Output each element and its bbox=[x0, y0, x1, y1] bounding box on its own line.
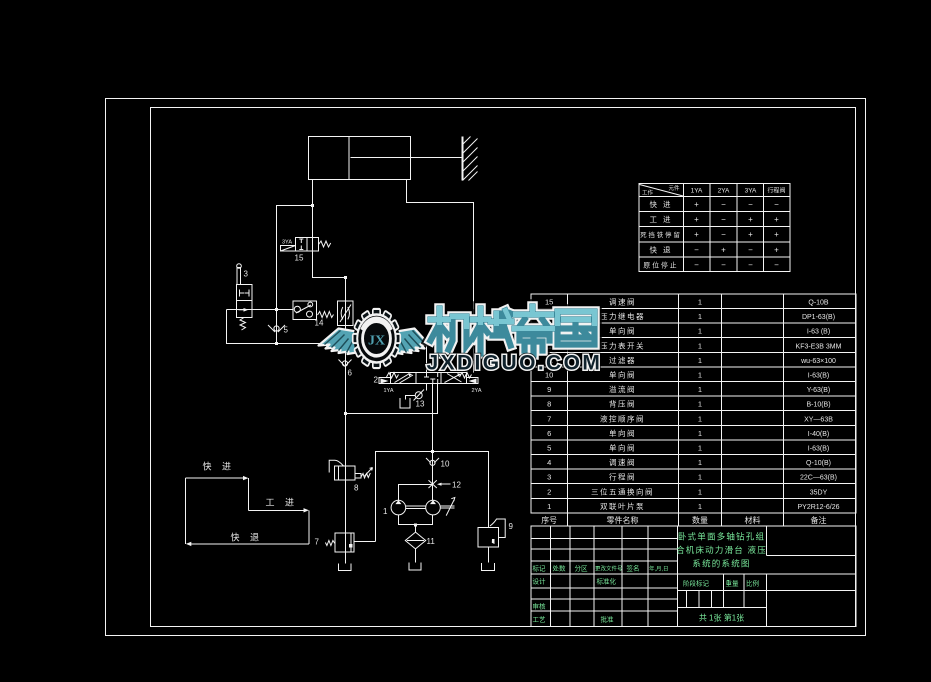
svg-text:2YA: 2YA bbox=[472, 388, 482, 394]
svg-text:XY—63B: XY—63B bbox=[804, 416, 833, 423]
svg-text:1: 1 bbox=[698, 502, 702, 511]
svg-text:压力表开关: 压力表开关 bbox=[600, 340, 645, 350]
svg-text:快 退: 快 退 bbox=[649, 245, 672, 255]
svg-text:PY2R12-6/26: PY2R12-6/26 bbox=[797, 504, 839, 511]
svg-text:单向阀: 单向阀 bbox=[609, 443, 636, 453]
svg-text:阶段标记: 阶段标记 bbox=[683, 579, 710, 588]
svg-text:JX: JX bbox=[368, 334, 385, 349]
svg-text:1: 1 bbox=[698, 312, 702, 321]
svg-text:元件: 元件 bbox=[669, 184, 681, 192]
svg-text:5: 5 bbox=[284, 326, 289, 335]
svg-text:2YA: 2YA bbox=[718, 188, 730, 195]
svg-text:背压阀: 背压阀 bbox=[609, 399, 636, 409]
svg-text:压力继电器: 压力继电器 bbox=[600, 311, 645, 321]
svg-text:14: 14 bbox=[315, 319, 324, 328]
svg-text:处数: 处数 bbox=[553, 564, 567, 573]
svg-text:重量: 重量 bbox=[726, 580, 740, 588]
svg-text:系统的系统图: 系统的系统图 bbox=[692, 559, 750, 569]
svg-text:单向阀: 单向阀 bbox=[609, 370, 636, 380]
svg-text:调速阀: 调速阀 bbox=[609, 298, 636, 307]
svg-text:1: 1 bbox=[383, 507, 388, 516]
svg-text:JXDIGUO.COM: JXDIGUO.COM bbox=[427, 352, 603, 375]
svg-text:6: 6 bbox=[547, 429, 551, 438]
svg-text:I-63(B): I-63(B) bbox=[808, 446, 829, 453]
svg-text:−: − bbox=[748, 261, 753, 270]
svg-text:5: 5 bbox=[547, 444, 551, 453]
svg-text:−: − bbox=[721, 261, 726, 270]
svg-text:死挡铁停留: 死挡铁停留 bbox=[640, 230, 681, 239]
svg-text:6: 6 bbox=[348, 369, 353, 378]
svg-text:零件名称: 零件名称 bbox=[607, 515, 639, 525]
svg-text:标记: 标记 bbox=[533, 564, 547, 573]
svg-text:材料: 材料 bbox=[745, 515, 761, 525]
svg-text:备注: 备注 bbox=[811, 515, 827, 525]
svg-text:8: 8 bbox=[354, 484, 359, 493]
svg-text:4: 4 bbox=[547, 458, 551, 467]
svg-text:工 进: 工 进 bbox=[266, 498, 299, 508]
svg-text:DP1-63(B): DP1-63(B) bbox=[802, 314, 835, 321]
svg-text:1: 1 bbox=[698, 341, 702, 350]
svg-text:3YA: 3YA bbox=[282, 240, 292, 246]
svg-text:1YA: 1YA bbox=[691, 188, 703, 195]
svg-text:过滤器: 过滤器 bbox=[609, 355, 636, 365]
svg-text:+: + bbox=[748, 215, 753, 224]
svg-text:设计: 设计 bbox=[533, 577, 547, 586]
svg-text:2: 2 bbox=[374, 376, 379, 385]
svg-text:共 1张 第1张: 共 1张 第1张 bbox=[699, 613, 744, 623]
svg-text:工 进: 工 进 bbox=[649, 215, 672, 224]
svg-text:双联叶片泵: 双联叶片泵 bbox=[600, 501, 645, 511]
svg-text:B-10(B): B-10(B) bbox=[806, 402, 830, 409]
svg-text:−: − bbox=[721, 200, 726, 209]
svg-text:1: 1 bbox=[698, 356, 702, 365]
svg-text:批准: 批准 bbox=[601, 615, 615, 624]
svg-text:1: 1 bbox=[698, 487, 702, 496]
svg-text:10: 10 bbox=[441, 460, 450, 469]
svg-text:I-63 (B): I-63 (B) bbox=[807, 329, 830, 336]
svg-text:合机床动力滑台 液压: 合机床动力滑台 液压 bbox=[676, 545, 767, 555]
svg-text:快 进: 快 进 bbox=[649, 199, 672, 209]
svg-text:Q-10(B): Q-10(B) bbox=[806, 460, 831, 467]
svg-text:−: − bbox=[748, 200, 753, 209]
svg-text:+: + bbox=[774, 215, 779, 224]
svg-text:更改文件号: 更改文件号 bbox=[595, 565, 623, 573]
svg-text:行程阀: 行程阀 bbox=[767, 187, 785, 195]
svg-text:液控顺序阀: 液控顺序阀 bbox=[600, 413, 645, 423]
svg-text:分区: 分区 bbox=[575, 564, 589, 573]
svg-text:数量: 数量 bbox=[692, 515, 708, 525]
svg-text:2: 2 bbox=[547, 487, 551, 496]
svg-text:单向阀: 单向阀 bbox=[609, 326, 636, 336]
svg-text:1: 1 bbox=[547, 502, 551, 511]
svg-text:1: 1 bbox=[698, 371, 702, 380]
svg-text:年,月,日: 年,月,日 bbox=[649, 565, 669, 573]
svg-text:12: 12 bbox=[452, 481, 461, 490]
svg-text:−: − bbox=[694, 261, 699, 270]
svg-text:1: 1 bbox=[698, 458, 702, 467]
svg-text:−: − bbox=[694, 246, 699, 255]
svg-text:1: 1 bbox=[698, 385, 702, 394]
svg-text:快 退: 快 退 bbox=[231, 532, 264, 543]
svg-text:9: 9 bbox=[547, 385, 551, 394]
svg-text:1: 1 bbox=[698, 473, 702, 482]
svg-text:−: − bbox=[774, 261, 779, 270]
svg-text:22C—63(B): 22C—63(B) bbox=[800, 475, 837, 482]
svg-text:审核: 审核 bbox=[533, 602, 547, 611]
svg-text:+: + bbox=[721, 246, 726, 255]
svg-text:KF3-E3B 3MM: KF3-E3B 3MM bbox=[796, 343, 842, 350]
svg-text:1YA: 1YA bbox=[384, 388, 394, 394]
svg-text:1: 1 bbox=[698, 298, 702, 307]
svg-text:序号: 序号 bbox=[541, 515, 557, 525]
svg-text:−: − bbox=[721, 230, 726, 239]
svg-text:3: 3 bbox=[547, 473, 551, 482]
svg-text:+: + bbox=[774, 246, 779, 255]
svg-text:签名: 签名 bbox=[627, 564, 640, 573]
svg-text:工艺: 工艺 bbox=[533, 616, 547, 624]
svg-text:标准化: 标准化 bbox=[597, 577, 617, 586]
svg-text:1: 1 bbox=[698, 400, 702, 409]
svg-text:卧式单面多轴钻孔组: 卧式单面多轴钻孔组 bbox=[678, 532, 765, 542]
svg-text:wu-63×100: wu-63×100 bbox=[800, 358, 836, 365]
svg-text:7: 7 bbox=[547, 414, 551, 423]
svg-text:+: + bbox=[694, 200, 699, 209]
svg-text:工作: 工作 bbox=[642, 189, 654, 197]
svg-text:三位五通换向阀: 三位五通换向阀 bbox=[591, 486, 654, 496]
svg-text:1: 1 bbox=[698, 429, 702, 438]
svg-text:溢流阀: 溢流阀 bbox=[609, 384, 636, 394]
svg-text:35DY: 35DY bbox=[810, 489, 828, 496]
svg-text:+: + bbox=[748, 230, 753, 239]
svg-text:−: − bbox=[748, 246, 753, 255]
svg-text:单向阀: 单向阀 bbox=[609, 428, 636, 438]
svg-text:8: 8 bbox=[547, 400, 551, 409]
svg-text:I-63(B): I-63(B) bbox=[808, 373, 829, 380]
svg-text:Q-10B: Q-10B bbox=[808, 300, 829, 307]
svg-text:−: − bbox=[721, 215, 726, 224]
svg-text:13: 13 bbox=[416, 400, 425, 409]
svg-text:+: + bbox=[774, 230, 779, 239]
svg-text:1: 1 bbox=[698, 414, 702, 423]
svg-text:调速阀: 调速阀 bbox=[609, 458, 636, 467]
svg-text:1: 1 bbox=[698, 444, 702, 453]
svg-text:比例: 比例 bbox=[746, 579, 759, 588]
svg-text:行程阀: 行程阀 bbox=[609, 472, 636, 482]
svg-text:15: 15 bbox=[295, 254, 304, 263]
svg-text:9: 9 bbox=[509, 522, 514, 531]
svg-text:7: 7 bbox=[315, 538, 320, 547]
svg-text:+: + bbox=[694, 230, 699, 239]
svg-text:11: 11 bbox=[427, 537, 436, 546]
svg-text:Y-63(B): Y-63(B) bbox=[807, 387, 830, 394]
svg-text:原位停止: 原位停止 bbox=[643, 261, 678, 270]
svg-text:+: + bbox=[694, 215, 699, 224]
svg-text:−: − bbox=[774, 200, 779, 209]
svg-text:3YA: 3YA bbox=[745, 188, 757, 195]
svg-text:快 进: 快 进 bbox=[203, 461, 236, 472]
svg-text:1: 1 bbox=[698, 327, 702, 336]
svg-text:3: 3 bbox=[244, 270, 249, 279]
svg-text:I-40(B): I-40(B) bbox=[808, 431, 829, 438]
